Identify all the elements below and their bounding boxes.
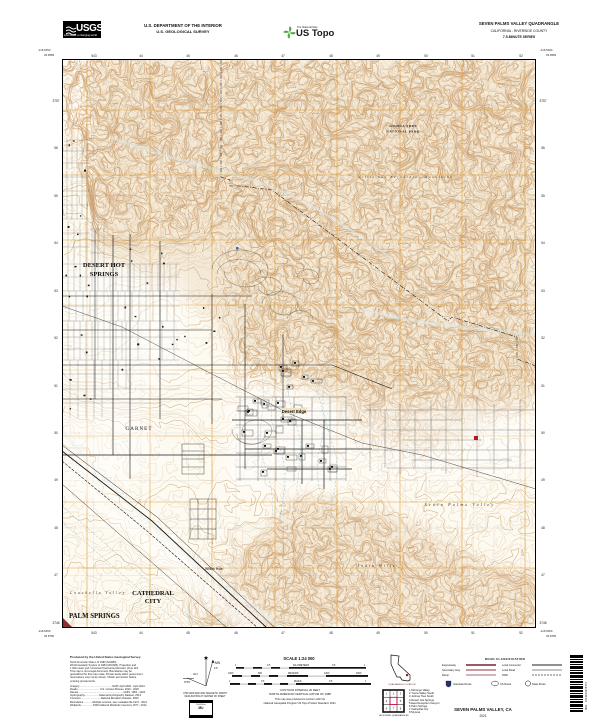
svg-text:4: 4	[386, 699, 388, 703]
svg-text:1: 1	[365, 680, 367, 683]
svg-text:52: 52	[541, 336, 545, 340]
svg-text:47: 47	[281, 54, 285, 58]
svg-text:1: 1	[235, 664, 237, 667]
svg-text:Local Connector: Local Connector	[502, 663, 521, 667]
svg-text:49: 49	[376, 54, 380, 58]
svg-text:53: 53	[54, 289, 58, 293]
svg-text:MILES: MILES	[294, 680, 302, 683]
svg-text:0.5: 0.5	[267, 664, 271, 667]
svg-text:NSN. 7643014675774: NSN. 7643014675774	[585, 682, 588, 710]
svg-text:46: 46	[234, 631, 238, 635]
svg-text:5: 5	[400, 699, 402, 703]
svg-text:51: 51	[54, 384, 58, 388]
svg-text:53: 53	[541, 289, 545, 293]
svg-text:KILOMETERS: KILOMETERS	[293, 664, 309, 667]
svg-text:0°06´: 0°06´	[184, 680, 191, 684]
svg-text:4WD: 4WD	[502, 673, 508, 677]
svg-text:1: 1	[386, 692, 388, 696]
svg-text:47: 47	[281, 631, 285, 635]
svg-text:MN: MN	[215, 661, 221, 665]
svg-text:49: 49	[54, 478, 58, 482]
svg-text:51: 51	[471, 631, 475, 635]
svg-text:50: 50	[424, 54, 428, 58]
svg-text:51: 51	[471, 54, 475, 58]
svg-text:0.5: 0.5	[332, 664, 336, 667]
svg-text:Interstate Route: Interstate Route	[453, 682, 472, 686]
svg-text:44: 44	[139, 631, 143, 635]
svg-text:8: 8	[400, 706, 402, 710]
svg-text:51: 51	[541, 384, 545, 388]
svg-text:Ramp: Ramp	[442, 673, 449, 677]
svg-text:46: 46	[234, 54, 238, 58]
svg-text:Local Road: Local Road	[502, 668, 516, 672]
svg-text:7: 7	[393, 706, 395, 710]
svg-text:54: 54	[541, 241, 545, 245]
svg-text:45: 45	[186, 54, 190, 58]
svg-text:3757: 3757	[539, 99, 546, 103]
svg-text:52: 52	[519, 631, 523, 635]
svg-text:52: 52	[519, 54, 523, 58]
svg-text:6: 6	[386, 706, 388, 710]
svg-text:48: 48	[329, 631, 333, 635]
svg-text:3757: 3757	[52, 99, 59, 103]
svg-text:Expressway: Expressway	[442, 663, 457, 667]
svg-text:47: 47	[54, 573, 58, 577]
svg-text:44: 44	[139, 54, 143, 58]
svg-text:500: 500	[258, 672, 263, 675]
svg-text:49: 49	[376, 631, 380, 635]
svg-text:543: 543	[91, 54, 97, 58]
svg-text:543: 543	[91, 631, 97, 635]
svg-text:50: 50	[541, 431, 545, 435]
svg-text:48: 48	[329, 54, 333, 58]
svg-text:3746: 3746	[52, 621, 59, 625]
svg-text:56: 56	[54, 146, 58, 150]
svg-text:0.5: 0.5	[261, 680, 265, 683]
svg-text:48: 48	[541, 526, 545, 530]
svg-text:Secondary Hwy: Secondary Hwy	[442, 668, 461, 672]
svg-text:54: 54	[54, 241, 58, 245]
svg-text:1000: 1000	[324, 672, 330, 675]
svg-text:55: 55	[54, 194, 58, 198]
svg-text:50: 50	[424, 631, 428, 635]
svg-text:56: 56	[541, 146, 545, 150]
svg-text:1: 1	[229, 680, 231, 683]
svg-text:47: 47	[541, 573, 545, 577]
svg-text:48: 48	[54, 526, 58, 530]
svg-text:52: 52	[54, 336, 58, 340]
svg-text:METERS: METERS	[288, 672, 299, 675]
svg-text:State Route: State Route	[532, 682, 546, 686]
svg-text:2000: 2000	[356, 672, 362, 675]
svg-text:2: 2	[393, 692, 395, 696]
svg-text:45: 45	[186, 631, 190, 635]
svg-text:55: 55	[541, 194, 545, 198]
svg-text:49: 49	[541, 478, 545, 482]
svg-text:US Route: US Route	[500, 682, 512, 686]
svg-text:50: 50	[54, 431, 58, 435]
svg-text:1000: 1000	[228, 672, 234, 675]
svg-text:GN: GN	[193, 672, 198, 676]
svg-text:1: 1	[364, 664, 366, 667]
svg-text:0.5: 0.5	[329, 680, 333, 683]
svg-text:3746: 3746	[539, 621, 546, 625]
svg-text:3: 3	[400, 692, 402, 696]
svg-text:11°: 11°	[214, 666, 219, 670]
